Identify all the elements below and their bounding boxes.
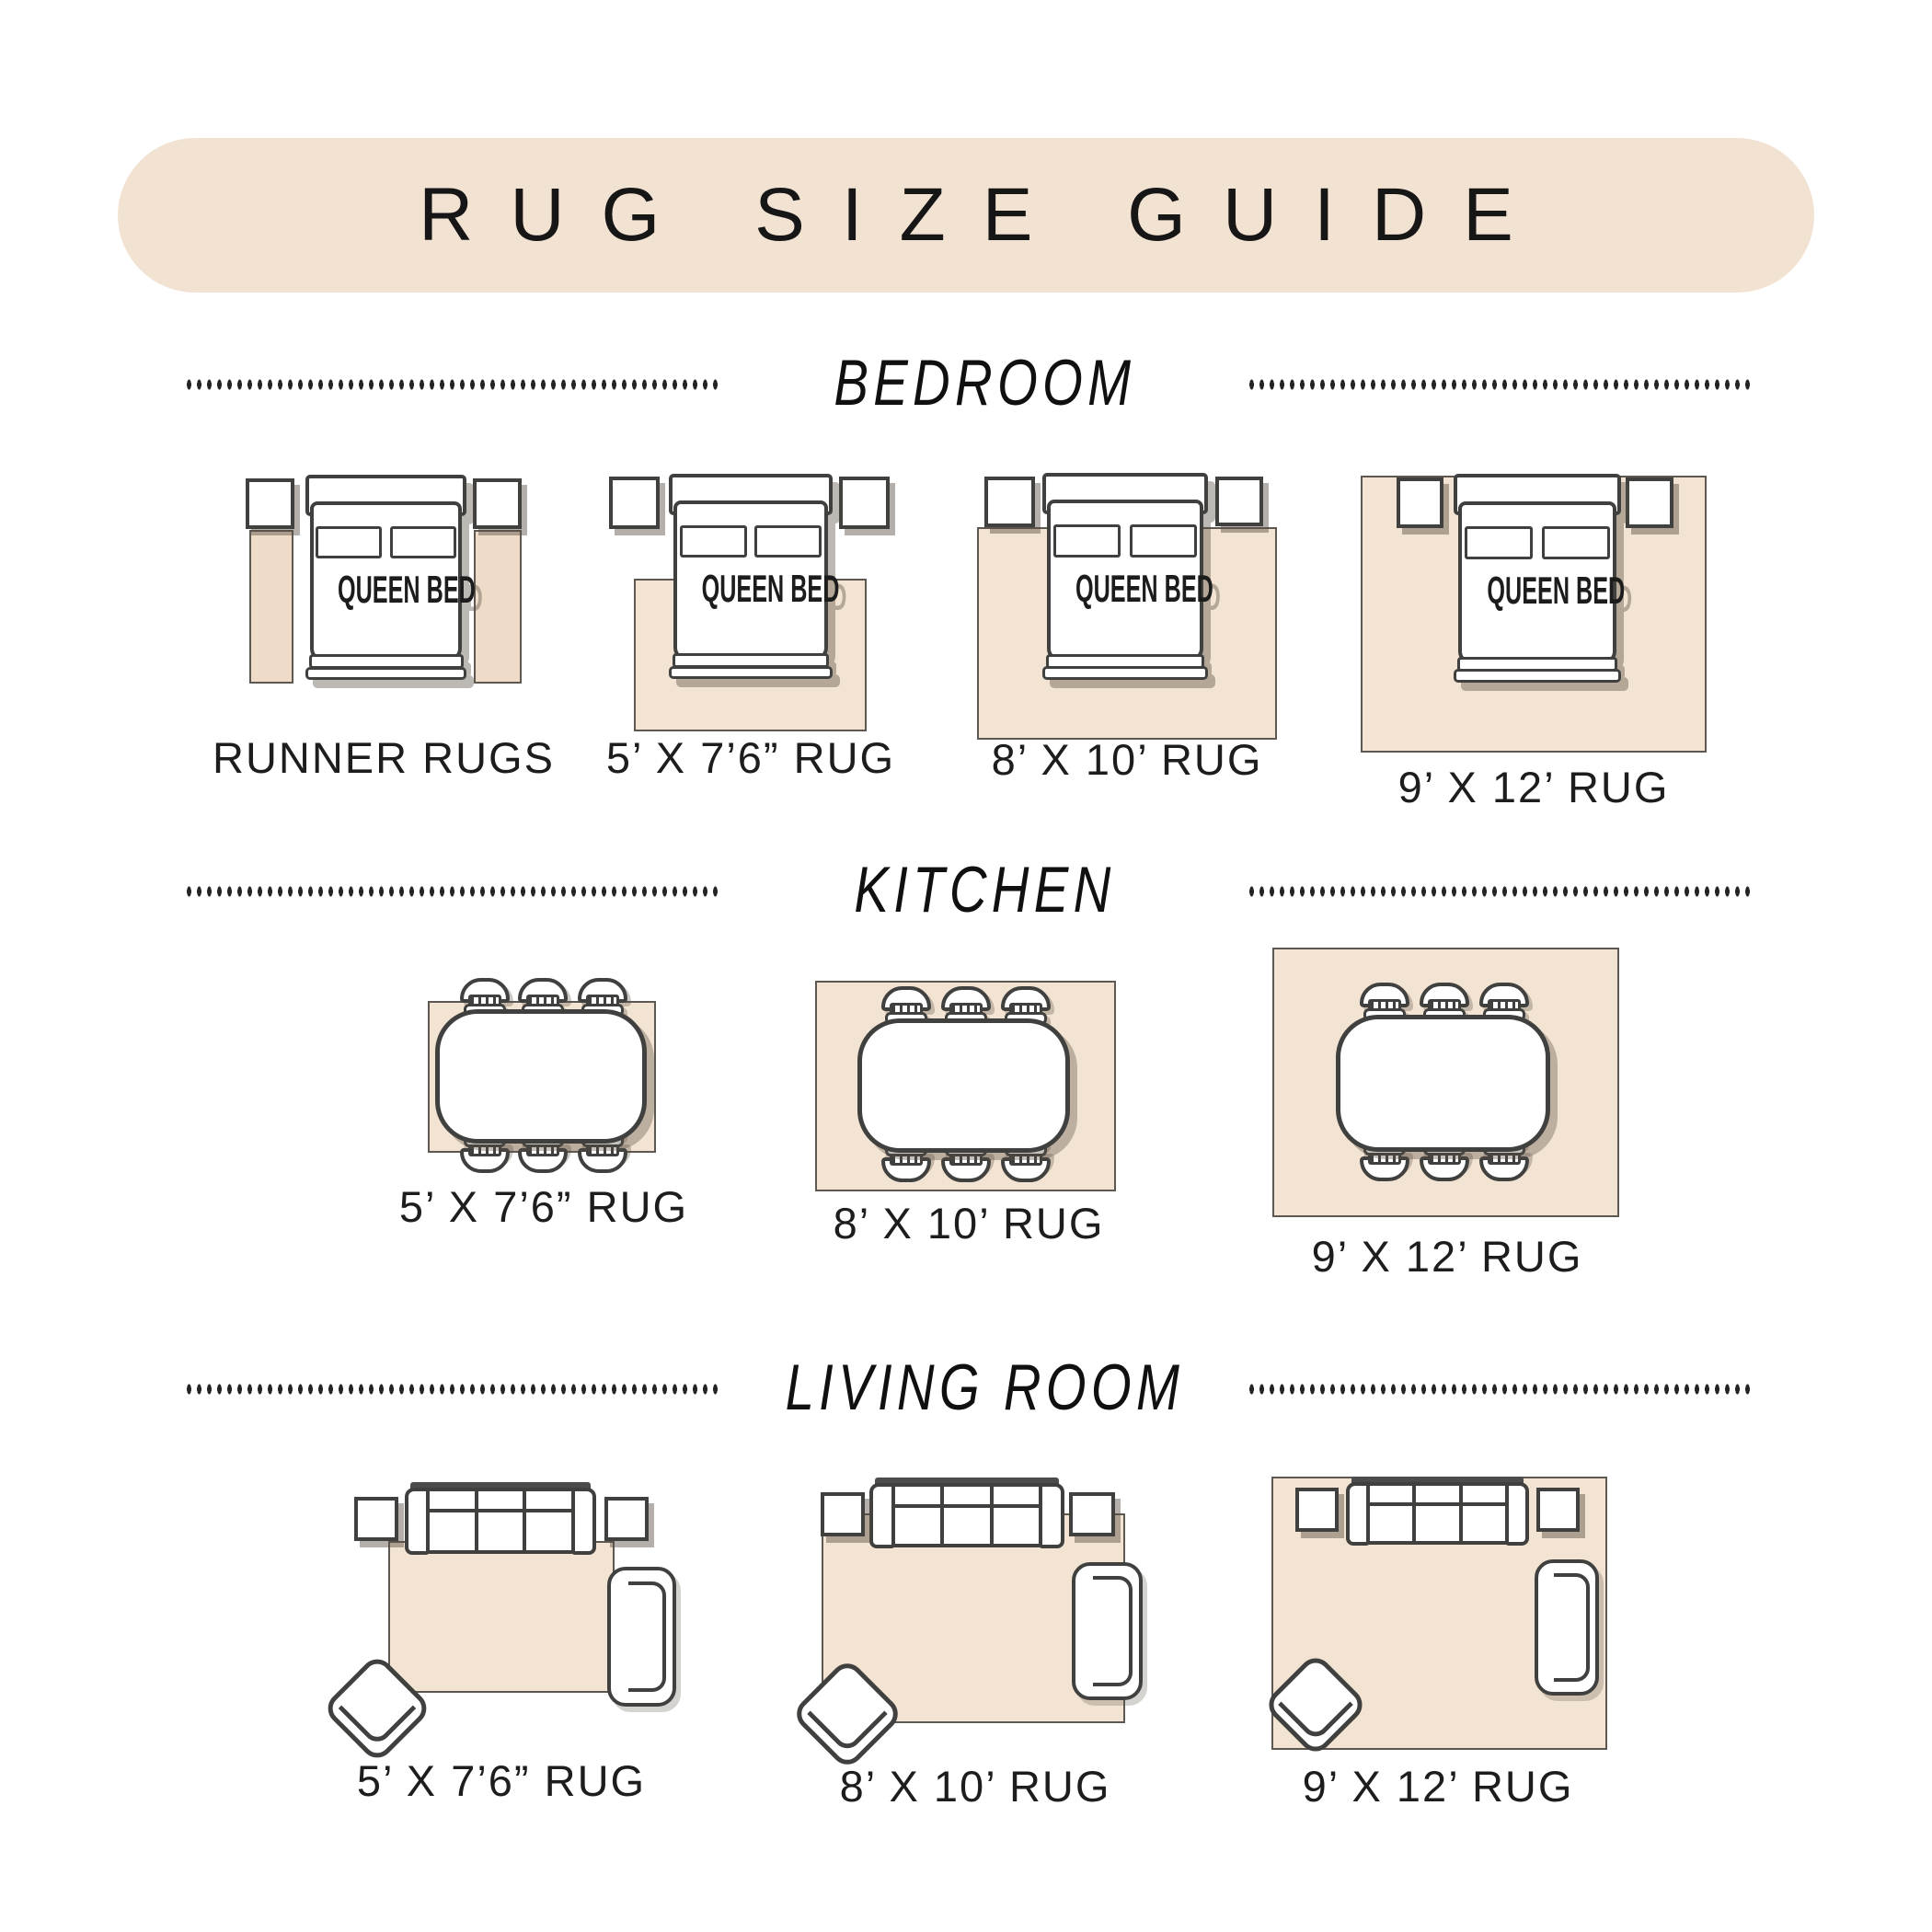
bed-footboard bbox=[1454, 669, 1621, 683]
chaise-lounge bbox=[1535, 1559, 1599, 1696]
sofa-cushion-divider bbox=[1412, 1486, 1416, 1541]
chair-cushion bbox=[1488, 1153, 1521, 1166]
nightstand bbox=[609, 477, 660, 529]
nightstand bbox=[984, 477, 1035, 527]
sofa-cushion-divider bbox=[475, 1491, 478, 1550]
dotted-divider-right bbox=[1247, 885, 1753, 898]
chair-cushion bbox=[890, 1154, 923, 1167]
chair-cushion bbox=[1009, 1003, 1042, 1016]
chair-cushion bbox=[468, 995, 501, 1007]
bed-label: QUEEN BED bbox=[1487, 569, 1587, 613]
section-title-living-room: LIVING ROOM bbox=[722, 1355, 1247, 1420]
rug-size-label: 8’ X 10’ RUG bbox=[785, 1200, 1153, 1248]
sofa bbox=[405, 1482, 596, 1555]
rug-size-label: 9’ X 12’ RUG bbox=[1254, 1763, 1622, 1811]
chaise-back-line bbox=[1554, 1573, 1589, 1682]
bed-pillow-right bbox=[754, 525, 822, 558]
chair-cushion bbox=[1009, 1154, 1042, 1167]
section-title-kitchen-text: KITCHEN bbox=[854, 855, 1115, 926]
dotted-divider-left bbox=[184, 885, 722, 898]
bed-pillow-right bbox=[390, 526, 456, 559]
chair-cushion bbox=[949, 1003, 983, 1016]
sofa-armrest-right bbox=[1505, 1482, 1529, 1546]
dining-table bbox=[857, 1018, 1070, 1153]
section-title-bedroom-text: BEDROOM bbox=[834, 348, 1135, 419]
bed-pillow-right bbox=[1542, 526, 1611, 559]
chair-cushion bbox=[1428, 999, 1461, 1012]
sofa-backrest-line bbox=[890, 1504, 1044, 1508]
rug-size-label: 8’ X 10’ RUG bbox=[791, 1763, 1159, 1811]
queen-bed: QUEEN BED bbox=[305, 475, 466, 680]
nightstand bbox=[473, 478, 522, 529]
dotted-divider-right bbox=[1247, 1383, 1753, 1396]
rug-size-label: RUNNER RUGS bbox=[200, 734, 568, 782]
chaise-lounge bbox=[1072, 1562, 1143, 1700]
rug-size-label: 5’ X 7’6” RUG bbox=[317, 1757, 685, 1805]
chair-cushion bbox=[1488, 999, 1521, 1012]
sofa-cushion-divider bbox=[990, 1487, 994, 1544]
chair-cushion bbox=[1368, 1153, 1401, 1166]
dining-table bbox=[435, 1009, 647, 1144]
nightstand bbox=[1215, 477, 1263, 526]
nightstand bbox=[1397, 477, 1443, 528]
bed-footboard bbox=[305, 667, 466, 680]
chair-cushion bbox=[586, 995, 619, 1007]
runner-rug-left bbox=[249, 530, 293, 684]
chair-cushion bbox=[468, 1144, 501, 1157]
bed-label: QUEEN BED bbox=[1075, 567, 1175, 611]
sofa-cushion-divider bbox=[523, 1491, 526, 1550]
side-table bbox=[1069, 1492, 1115, 1536]
rug-size-label: 9’ X 12’ RUG bbox=[1263, 1233, 1631, 1281]
chair-cushion bbox=[1368, 999, 1401, 1012]
sofa-armrest-left bbox=[869, 1483, 895, 1548]
sofa-body bbox=[422, 1488, 580, 1554]
sofa-backrest-line bbox=[425, 1509, 577, 1512]
nightstand bbox=[1626, 477, 1673, 528]
section-title-living-room-text: LIVING ROOM bbox=[785, 1352, 1184, 1423]
bed-footboard bbox=[1042, 666, 1208, 680]
accent-chair-back-line bbox=[338, 1669, 417, 1748]
bed-pillow-right bbox=[1130, 524, 1198, 558]
header-banner: RUG SIZE GUIDE bbox=[118, 138, 1814, 293]
living-rug-5x76 bbox=[388, 1541, 615, 1693]
dotted-divider-left bbox=[184, 378, 722, 391]
rug-size-label: 5’ X 7’6” RUG bbox=[567, 734, 935, 782]
rug-size-guide-infographic: RUG SIZE GUIDE BEDROOM QUEEN BED RUNNER … bbox=[0, 0, 1932, 1932]
queen-bed: QUEEN BED bbox=[1454, 474, 1621, 683]
chair-cushion bbox=[890, 1003, 923, 1016]
section-title-bedroom: BEDROOM bbox=[722, 351, 1247, 415]
rug-size-label: 5’ X 7’6” RUG bbox=[360, 1183, 728, 1231]
bed-label: QUEEN BED bbox=[338, 568, 434, 612]
queen-bed: QUEEN BED bbox=[669, 474, 833, 679]
dining-table bbox=[1336, 1015, 1550, 1152]
bed-pillow-left bbox=[1053, 524, 1121, 558]
nightstand bbox=[246, 478, 294, 529]
sofa bbox=[869, 1478, 1064, 1548]
sofa-body bbox=[1363, 1482, 1512, 1545]
dotted-divider-left bbox=[184, 1383, 722, 1396]
page-title: RUG SIZE GUIDE bbox=[382, 172, 1550, 259]
sofa-cushion-divider bbox=[1459, 1486, 1463, 1541]
sofa-body bbox=[887, 1483, 1047, 1547]
section-title-kitchen: KITCHEN bbox=[722, 857, 1247, 922]
sofa-armrest-right bbox=[1039, 1483, 1064, 1548]
bed-pillow-left bbox=[680, 525, 747, 558]
accent-chair-back-line bbox=[807, 1673, 888, 1754]
sofa bbox=[1346, 1477, 1529, 1546]
side-table bbox=[1536, 1488, 1580, 1532]
nightstand bbox=[839, 477, 890, 529]
runner-rug-right bbox=[474, 530, 522, 684]
sofa-armrest-right bbox=[571, 1488, 596, 1555]
bed-pillow-left bbox=[1465, 526, 1534, 559]
sofa-cushion-divider bbox=[940, 1487, 944, 1544]
chair-cushion bbox=[526, 1144, 559, 1157]
chair-cushion bbox=[1428, 1153, 1461, 1166]
bed-pillow-left bbox=[316, 526, 382, 559]
dotted-divider-right bbox=[1247, 378, 1753, 391]
rug-size-label: 8’ X 10’ RUG bbox=[943, 736, 1311, 784]
sofa-backrest-line bbox=[1365, 1502, 1510, 1506]
rug-size-label: 9’ X 12’ RUG bbox=[1350, 764, 1718, 811]
side-table bbox=[604, 1497, 649, 1541]
chair-cushion bbox=[526, 995, 559, 1007]
bed-label: QUEEN BED bbox=[702, 567, 800, 611]
accent-chair-back-line bbox=[1278, 1667, 1352, 1742]
side-table bbox=[821, 1492, 865, 1536]
sofa-armrest-left bbox=[405, 1488, 430, 1555]
chair-cushion bbox=[949, 1154, 983, 1167]
bed-footboard bbox=[669, 666, 833, 679]
side-table bbox=[1295, 1488, 1339, 1532]
chaise-back-line bbox=[628, 1581, 667, 1693]
queen-bed: QUEEN BED bbox=[1042, 473, 1208, 680]
chaise-back-line bbox=[1093, 1576, 1133, 1685]
chair-cushion bbox=[586, 1144, 619, 1157]
sofa-armrest-left bbox=[1346, 1482, 1370, 1546]
chaise-lounge bbox=[607, 1567, 676, 1707]
side-table bbox=[354, 1497, 398, 1541]
